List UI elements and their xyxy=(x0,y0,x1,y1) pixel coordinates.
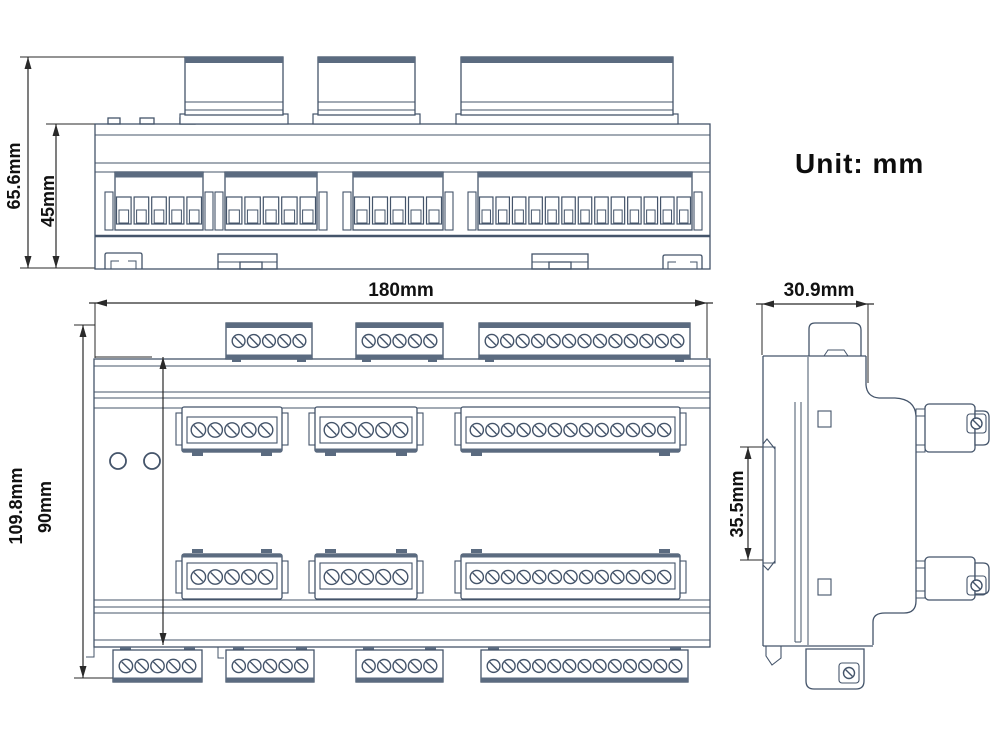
side-view-outline xyxy=(763,323,989,689)
side-view-lower-terminal xyxy=(916,557,989,600)
dim-label-top-view-total-height: 65.6mm xyxy=(3,126,25,226)
dim-label-top-view-body-height: 45mm xyxy=(37,151,59,251)
technical-drawing-page: Unit: mm 65.6mm 45mm 180mm 109.8mm 90mm … xyxy=(0,0,1000,739)
top-view-ct-connectors xyxy=(180,57,678,124)
dim-label-front-view-width: 180mm xyxy=(351,280,451,302)
side-view-bottom-terminal xyxy=(806,649,864,689)
front-view-outline xyxy=(86,359,710,658)
unit-note: Unit: mm xyxy=(795,148,924,180)
dim-label-din-rail-height: 35.5mm xyxy=(726,454,748,554)
dimensional-drawing-svg xyxy=(0,0,1000,739)
dim-label-front-view-body-height: 90mm xyxy=(34,457,56,557)
dim-label-front-view-total-height: 109.8mm xyxy=(5,456,27,556)
dim-label-side-view-depth: 30.9mm xyxy=(769,280,869,302)
top-view-terminal-blocks xyxy=(105,172,702,230)
side-view-screws xyxy=(844,418,983,679)
